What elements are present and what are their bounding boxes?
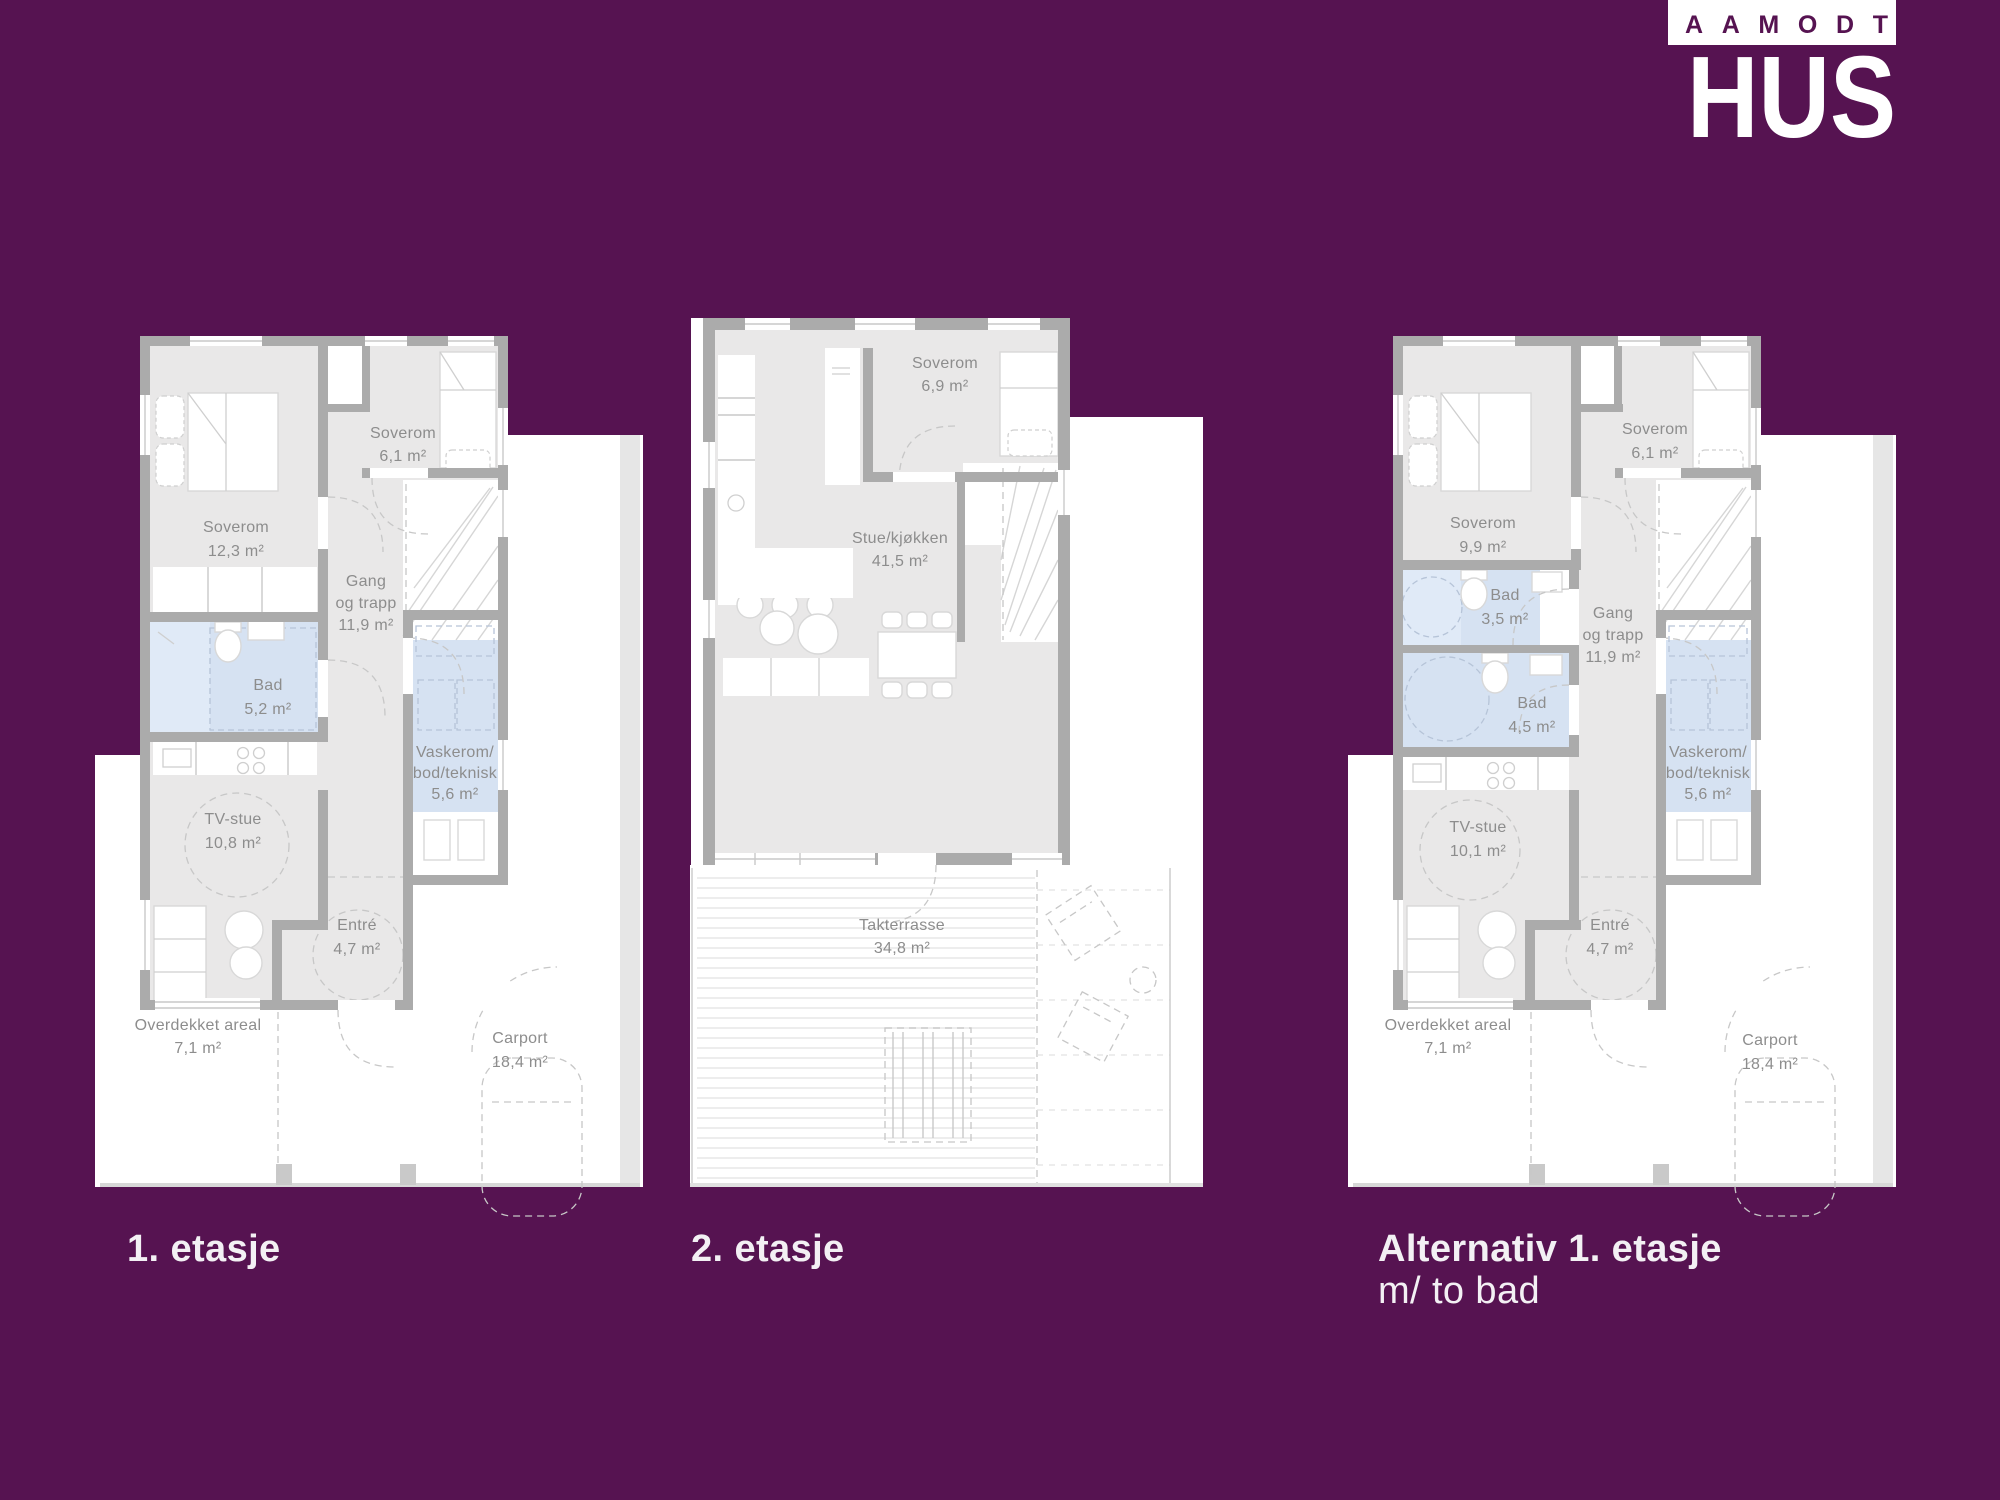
page-background: Soverom 12,3 m² Soverom 6,1 m² Gang og t…	[0, 0, 2000, 1500]
caption-floor-1: 1. etasje	[127, 1228, 281, 1270]
dining-table	[878, 632, 956, 678]
room-label-name: Soverom	[912, 355, 978, 372]
caption-floor-alternative: Alternativ 1. etasje m/ to bad	[1378, 1228, 1722, 1312]
caption-subtext: m/ to bad	[1378, 1270, 1722, 1312]
logo-hus-text: HUS	[1687, 32, 1896, 142]
room-label-name: Entré	[337, 917, 377, 934]
room-label-area: 6,1 m²	[379, 448, 427, 465]
room-label-name: Bad	[1490, 587, 1519, 604]
room-label-area: 18,4 m²	[1742, 1056, 1799, 1073]
room-label-area: 18,4 m²	[492, 1054, 549, 1071]
room-label-area: 4,7 m²	[333, 941, 381, 958]
floor-plan-1: Soverom 12,3 m² Soverom 6,1 m² Gang og t…	[95, 336, 643, 1216]
room-label-area: 11,9 m²	[1585, 649, 1641, 666]
toilet	[215, 630, 241, 662]
room-label-name: Vaskerom/	[1669, 744, 1747, 761]
room-label-area: 9,9 m²	[1459, 539, 1507, 556]
room-label-name: Soverom	[1450, 515, 1516, 532]
sink	[1532, 572, 1562, 592]
room-label-area: 34,8 m²	[874, 940, 931, 957]
room-label-area: 5,6 m²	[1684, 786, 1732, 803]
room-label-name: Overdekket areal	[1385, 1017, 1512, 1034]
sink	[1530, 655, 1562, 675]
room-label-area: 12,3 m²	[208, 543, 265, 560]
room-label-name: Carport	[1742, 1032, 1798, 1049]
room-label-area: 6,1 m²	[1631, 445, 1679, 462]
room-label-name: Soverom	[1622, 421, 1688, 438]
room-label-name: Stue/kjøkken	[852, 530, 948, 547]
floor-plan-2: Soverom 6,9 m² Stue/kjøkken 41,5 m² Takt…	[690, 318, 1203, 1187]
toilet	[1482, 661, 1508, 693]
caption-text: 1. etasje	[127, 1228, 281, 1270]
room-label-area: 10,1 m²	[1450, 843, 1507, 860]
bed	[188, 393, 278, 491]
room-label-area: 41,5 m²	[872, 553, 929, 570]
bed	[1441, 393, 1531, 491]
caption-text: Alternativ 1. etasje	[1378, 1228, 1722, 1270]
room-label-name: Soverom	[370, 425, 436, 442]
room-label-area: 10,8 m²	[205, 835, 262, 852]
room-label-area: 3,5 m²	[1481, 611, 1529, 628]
room-label-area: 5,2 m²	[244, 701, 292, 718]
room-label-name: TV-stue	[204, 811, 261, 828]
caption-text: 2. etasje	[691, 1228, 845, 1270]
room-label-name: Vaskerom/	[416, 744, 494, 761]
room-label-name: Carport	[492, 1030, 548, 1047]
sofa	[154, 906, 206, 1004]
aamodt-hus-logo: AAMODT HUS	[1668, 0, 1896, 142]
floor-plan-3-alternative: Soverom 9,9 m² Soverom 6,1 m² Bad 3,5 m²…	[1348, 336, 1896, 1216]
sofa	[723, 658, 869, 696]
room-label-area: 11,9 m²	[338, 617, 394, 634]
toilet	[1461, 578, 1487, 610]
room-label-name: og trapp	[1582, 627, 1643, 644]
room-label-area: 7,1 m²	[174, 1040, 222, 1057]
room-label-name: Overdekket areal	[135, 1017, 262, 1034]
room-label-name: Bad	[253, 677, 282, 694]
room-label-name: bod/teknisk	[413, 765, 498, 782]
room-label-area: 7,1 m²	[1424, 1040, 1472, 1057]
room-label-name: Bad	[1517, 695, 1546, 712]
room-label-area: 4,5 m²	[1508, 719, 1556, 736]
room-label-name: Soverom	[203, 519, 269, 536]
room-label-name: Takterrasse	[859, 917, 945, 934]
kitchen-island	[723, 548, 853, 598]
room-label-name: TV-stue	[1449, 819, 1506, 836]
room-label-name: og trapp	[335, 595, 396, 612]
room-label-area: 6,9 m²	[921, 378, 969, 395]
room-label-name: Gang	[346, 573, 386, 590]
caption-floor-2: 2. etasje	[691, 1228, 845, 1270]
room-label-name: bod/teknisk	[1666, 765, 1751, 782]
room-label-area: 4,7 m²	[1586, 941, 1634, 958]
room-label-name: Entré	[1590, 917, 1630, 934]
room-label-name: Gang	[1593, 605, 1633, 622]
sofa	[1407, 906, 1459, 1004]
room-label-area: 5,6 m²	[431, 786, 479, 803]
